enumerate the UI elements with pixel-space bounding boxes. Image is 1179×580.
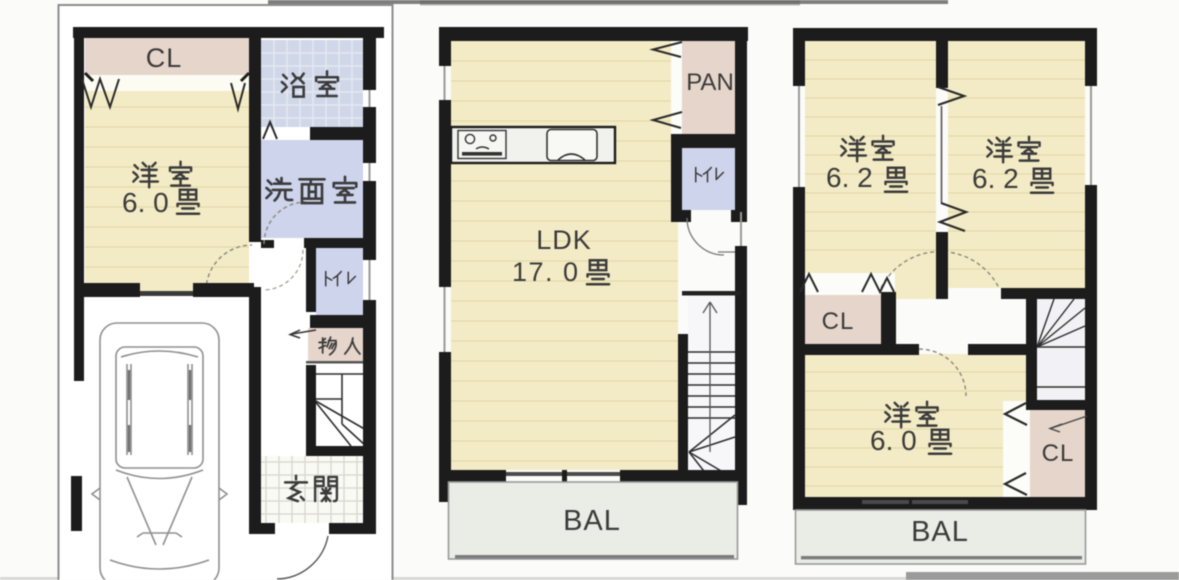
svg-text:CL: CL (146, 43, 183, 73)
svg-text:CL: CL (822, 308, 855, 335)
svg-text:PAN: PAN (686, 69, 734, 96)
svg-text:CL: CL (1042, 440, 1075, 467)
svg-text:6. 2: 6. 2 (972, 163, 1019, 194)
svg-text:BAL: BAL (911, 516, 969, 548)
svg-text:LDK: LDK (536, 225, 592, 255)
svg-text:BAL: BAL (563, 505, 621, 537)
svg-text:6. 0: 6. 0 (122, 187, 169, 218)
svg-text:6. 2: 6. 2 (826, 162, 873, 193)
svg-text:17. 0: 17. 0 (512, 257, 580, 287)
svg-text:6. 0: 6. 0 (870, 425, 917, 456)
